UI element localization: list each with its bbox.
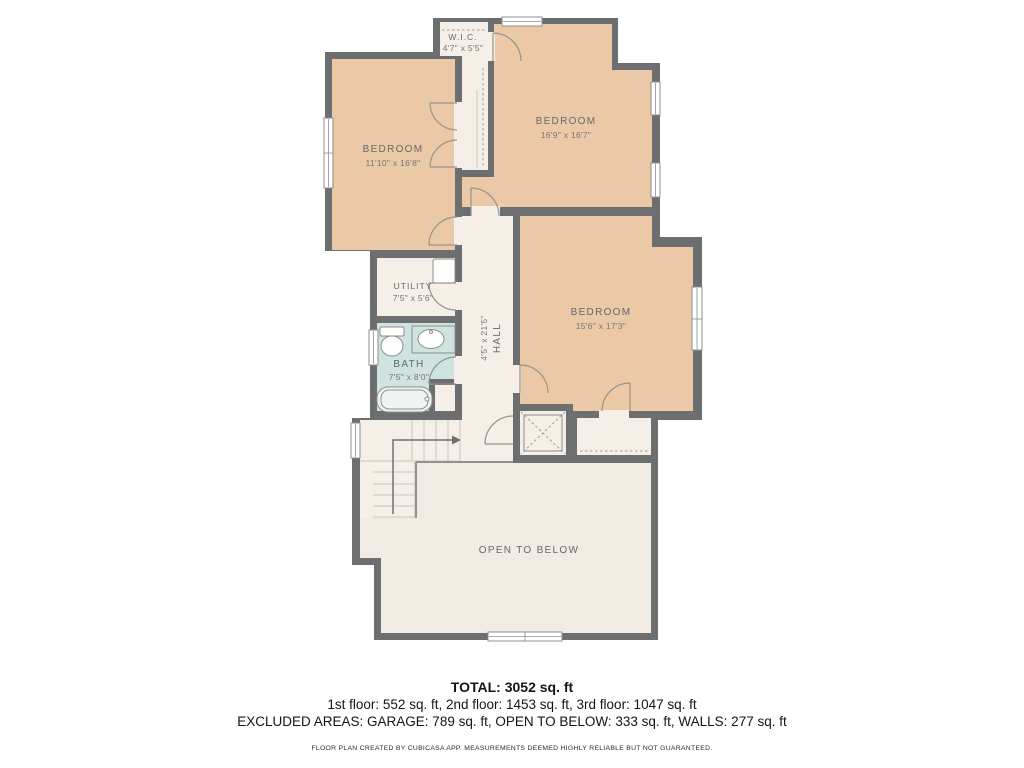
room-dims-wic: 4'7" x 5'5"	[443, 43, 483, 53]
window	[651, 163, 660, 197]
room-label-utility: UTILITY	[394, 281, 433, 291]
door-opening	[454, 356, 463, 384]
room-label-wic: W.I.C.	[448, 32, 477, 42]
room-dims-utility: 7'5" x 5'6"	[393, 293, 433, 303]
room-label-bedroom-top: BEDROOM	[536, 116, 597, 127]
utility-appliance	[433, 259, 455, 283]
room-dims-bedroom-left: 11'10" x 16'8"	[366, 158, 421, 168]
floor-plan-page: W.I.C. 4'7" x 5'5" BEDROOM 11'10" x 16'8…	[0, 0, 1024, 768]
floor-plan-drawing: W.I.C. 4'7" x 5'5" BEDROOM 11'10" x 16'8…	[0, 0, 1024, 768]
bath-closet-floor	[435, 385, 455, 411]
bedroom-right-closet	[577, 418, 651, 455]
room-label-hall: HALL	[492, 323, 503, 353]
total-area-text: TOTAL: 3052 sq. ft	[0, 679, 1024, 696]
area-summary: TOTAL: 3052 sq. ft 1st floor: 552 sq. ft…	[0, 679, 1024, 752]
toilet	[380, 327, 404, 356]
window	[488, 632, 562, 641]
room-label-bedroom-right: BEDROOM	[571, 307, 632, 318]
room-label-bath: BATH	[393, 359, 424, 370]
room-dims-bath: 7'5" x 8'0"	[389, 372, 429, 382]
excluded-areas-text: EXCLUDED AREAS: GARAGE: 789 sq. ft, OPEN…	[0, 713, 1024, 730]
room-dims-hall: 4'5" x 21'5"	[479, 315, 489, 361]
window	[369, 330, 378, 365]
door-opening	[599, 410, 629, 419]
disclaimer-text: FLOOR PLAN CREATED BY CUBICASA APP. MEAS…	[0, 745, 1024, 752]
window	[324, 118, 333, 188]
window	[351, 423, 360, 458]
door-opening	[454, 217, 463, 245]
door-opening	[471, 206, 500, 217]
window	[692, 287, 702, 350]
door-opening	[454, 102, 463, 168]
room-label-bedroom-left: BEDROOM	[363, 144, 424, 155]
room-dims-bedroom-right: 15'6" x 17'3"	[576, 321, 627, 331]
bathtub	[377, 387, 432, 412]
window	[651, 82, 660, 115]
elevator-shaft	[513, 404, 573, 462]
door-opening	[487, 32, 495, 61]
closet-floor	[577, 418, 651, 455]
room-dims-bedroom-top: 16'9" x 16'7"	[541, 130, 592, 140]
room-label-open-to-below: OPEN TO BELOW	[479, 545, 579, 556]
window	[502, 17, 542, 26]
floor-areas-text: 1st floor: 552 sq. ft, 2nd floor: 1453 s…	[0, 696, 1024, 713]
door-opening	[454, 282, 463, 310]
